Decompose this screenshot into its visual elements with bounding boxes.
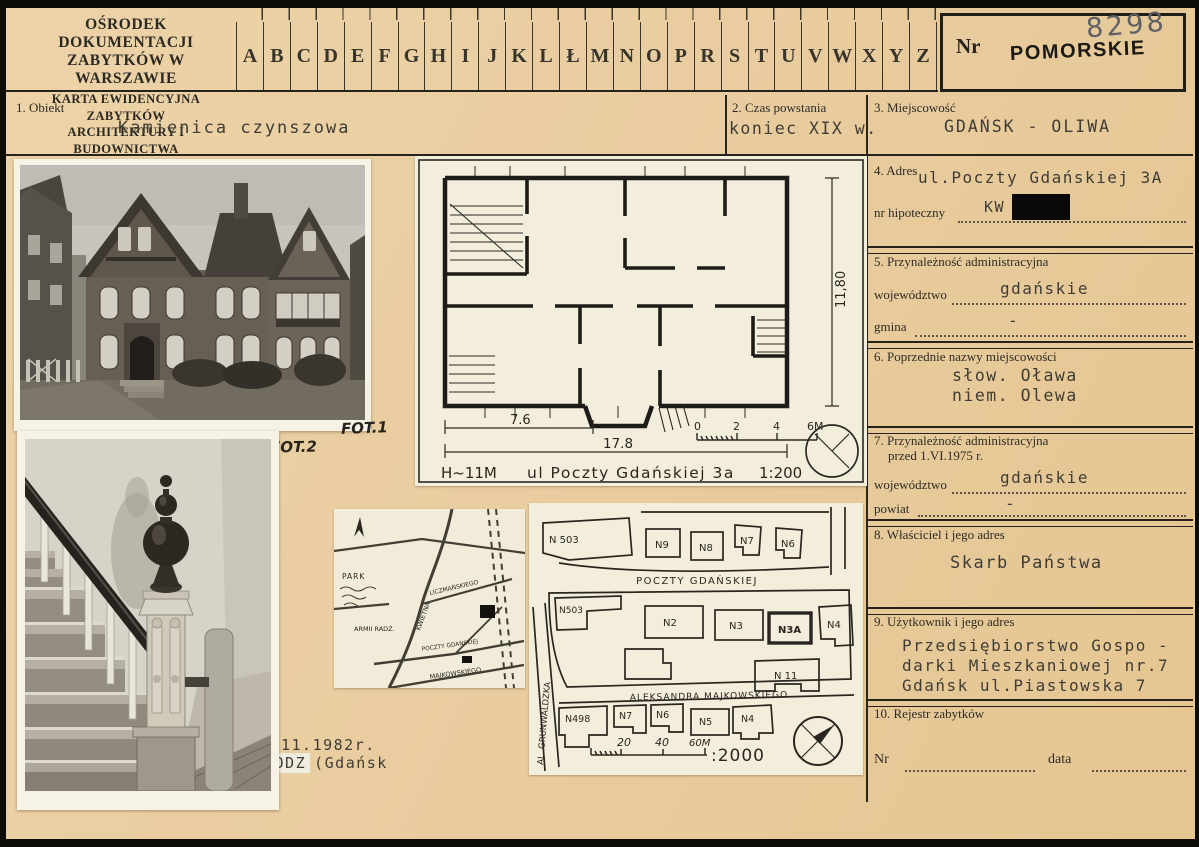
svg-text:PARK: PARK: [342, 572, 365, 581]
poprzednie-line2: niem. Olewa: [952, 386, 1078, 405]
floor-plan-drawing: 7.6 17.8 11,80 0 2 4 6M H~11M ul Poczty …: [415, 156, 867, 486]
svg-text:N4: N4: [827, 620, 841, 631]
photo1-caption: FOT.1: [341, 418, 388, 438]
site-plan: N 503 N9 N8 N7 N6 N503 N2 N3 N3A N4 N 11…: [529, 503, 863, 775]
alphabet-letter-P: P: [667, 22, 694, 90]
field-poprzednie-label: 6. Poprzednie nazwy miejscowości: [874, 349, 1057, 365]
photo-building: [14, 159, 371, 431]
alphabet-letter-K: K: [505, 22, 532, 90]
uzytkownik-line1: Przedsiębiorstwo Gospo -: [902, 636, 1169, 655]
svg-text:N503: N503: [559, 606, 583, 616]
header-bottom-rule: [6, 90, 938, 92]
svg-text:N2: N2: [663, 618, 677, 629]
field-przynaleznosc-label: 5. Przynależność administracyjna: [874, 254, 1048, 270]
institution-name-line2: ZABYTKÓW W WARSZAWIE: [16, 52, 236, 88]
alphabet-letter-Y: Y: [882, 22, 909, 90]
alphabet-letter-M: M: [586, 22, 613, 90]
svg-text:60M: 60M: [689, 738, 711, 749]
field-hipoteczny-value: KW: [984, 198, 1005, 216]
alphabet-letter-G: G: [398, 22, 425, 90]
powiat-value: -: [1005, 494, 1016, 513]
alphabet-strip: ABCDEFGHIJKLŁMNOPRSTUVWXYZ: [236, 22, 937, 90]
alphabet-letter-S: S: [721, 22, 748, 90]
field-obiekt-label: 1. Obiekt: [16, 100, 64, 116]
alphabet-letter-W: W: [828, 22, 855, 90]
institution-name-line1: OŚRODEK DOKUMENTACJI: [16, 16, 236, 52]
svg-text:N6: N6: [781, 539, 795, 550]
powiat-dotted-line: [918, 514, 1186, 517]
svg-text:0: 0: [694, 420, 701, 433]
alphabet-letter-D: D: [317, 22, 344, 90]
divider-7-8: [866, 519, 1193, 527]
svg-text::2000: :2000: [711, 746, 765, 766]
svg-text:N9: N9: [655, 540, 669, 551]
field-przynaleznosc1975-label: 7. Przynależność administracyjna: [874, 433, 1048, 449]
rejestr-data-label: data: [1048, 752, 1071, 768]
svg-text:N5: N5: [699, 717, 712, 728]
alphabet-letter-R: R: [694, 22, 721, 90]
alphabet-letter-F: F: [371, 22, 398, 90]
svg-text:2: 2: [733, 420, 740, 433]
svg-text:17.8: 17.8: [603, 436, 633, 452]
alphabet-letter-T: T: [748, 22, 775, 90]
nr-label: Nr: [956, 34, 981, 59]
alphabet-letter-X: X: [855, 22, 882, 90]
alphabet-letter-A: A: [236, 22, 263, 90]
gmina-dotted-line: [915, 334, 1186, 337]
uzytkownik-line2: darki Mieszkaniowej nr.7: [902, 656, 1169, 675]
svg-text:7.6: 7.6: [510, 413, 531, 428]
godz-suffix: (Gdańsk: [314, 754, 388, 772]
svg-text:ARMII RADZ.: ARMII RADZ.: [354, 625, 395, 633]
floor-plan-sheet: 7.6 17.8 11,80 0 2 4 6M H~11M ul Poczty …: [415, 156, 867, 486]
field-uzytkownik-label: 9. Użytkownik i jego adres: [874, 614, 1014, 630]
svg-text:N6: N6: [656, 710, 669, 721]
svg-text:N 503: N 503: [549, 535, 579, 546]
field-wlasciciel-label: 8. Właściciel i jego adres: [874, 527, 1005, 543]
svg-text:N3: N3: [729, 621, 743, 632]
field-obiekt-value: Kamienica czynszowa: [118, 118, 350, 138]
field-czas-value: koniec XIX w.: [729, 119, 878, 138]
wojewodztwo-value: gdańskie: [1000, 279, 1089, 298]
poprzednie-line1: słow. Oława: [952, 366, 1078, 385]
minimap-drawing: PARK ARMII RADZ. KWIETNA LICZMAŃSKIEGO P…: [334, 509, 525, 688]
floor-plan-compass: [806, 425, 858, 477]
wojewodztwo1975-label: województwo: [874, 477, 947, 493]
hipoteczny-dotted-line: [958, 220, 1186, 223]
alphabet-tick-marks: [236, 8, 936, 20]
site-plan-compass: [794, 717, 842, 765]
wlasciciel-value: Skarb Państwa: [950, 553, 1103, 573]
divider-field2: [725, 95, 727, 155]
field-przynaleznosc1975-label2: przed 1.VI.1975 r.: [888, 448, 983, 464]
field-hipoteczny-label: nr hipoteczny: [874, 205, 945, 221]
svg-text:MAJKOWSKIEGO: MAJKOWSKIEGO: [429, 666, 482, 681]
field-rejestr-label: 10. Rejestr zabytków: [874, 706, 984, 722]
alphabet-letter-B: B: [263, 22, 290, 90]
svg-text:N 11: N 11: [774, 671, 797, 682]
svg-text:N8: N8: [699, 543, 713, 554]
alphabet-letter-U: U: [774, 22, 801, 90]
alphabet-letter-E: E: [344, 22, 371, 90]
divider-4-5: [866, 246, 1193, 254]
wojewodztwo-label: województwo: [874, 287, 947, 303]
redaction-box: [1012, 194, 1070, 220]
svg-text:POCZTY GDAŃSKIEJ: POCZTY GDAŃSKIEJ: [636, 574, 758, 587]
building-photo-illustration: [20, 165, 365, 420]
field-adres-value: ul.Poczty Gdańskiej 3A: [918, 168, 1163, 187]
alphabet-letter-L: L: [532, 22, 559, 90]
divider-5-6: [866, 341, 1193, 349]
rejestr-nr-dotted-line: [905, 769, 1035, 772]
powiat-label: powiat: [874, 501, 909, 517]
uzytkownik-line3: Gdańsk ul.Piastowska 7: [902, 676, 1147, 695]
field-miejscowosc-label: 3. Miejscowość: [874, 100, 956, 116]
wojewodztwo1975-dotted-line: [952, 491, 1186, 494]
wojewodztwo1975-value: gdańskie: [1000, 468, 1089, 487]
svg-text:H~11M: H~11M: [441, 464, 497, 482]
staircase-photo-illustration: [25, 439, 271, 791]
alphabet-letter-H: H: [424, 22, 451, 90]
gmina-label: gmina: [874, 319, 907, 335]
field-miejscowosc-value: GDAŃSK - OLIWA: [944, 117, 1111, 136]
svg-text:N498: N498: [565, 714, 590, 725]
alphabet-letter-V: V: [801, 22, 828, 90]
svg-text:11,80: 11,80: [834, 271, 849, 308]
alphabet-letter-I: I: [451, 22, 478, 90]
svg-text:ALEKSANDRA MAJKOWSKIEGO: ALEKSANDRA MAJKOWSKIEGO: [630, 691, 789, 704]
svg-text:N3A: N3A: [778, 625, 801, 636]
rejestr-data-dotted-line: [1092, 769, 1186, 772]
alphabet-letter-N: N: [613, 22, 640, 90]
rejestr-nr-label: Nr: [874, 752, 889, 768]
alphabet-letter-O: O: [640, 22, 667, 90]
svg-text:4: 4: [773, 420, 780, 433]
svg-text:1:200: 1:200: [759, 464, 802, 482]
photo-staircase: [17, 431, 279, 810]
alphabet-letter-Ł: Ł: [559, 22, 586, 90]
field-adres-label: 4. Adres: [874, 163, 917, 179]
location-minimap: PARK ARMII RADZ. KWIETNA LICZMAŃSKIEGO P…: [334, 509, 525, 688]
svg-text:40: 40: [655, 736, 669, 749]
alphabet-letter-J: J: [478, 22, 505, 90]
svg-text:20: 20: [617, 736, 631, 749]
svg-text:N4: N4: [741, 714, 754, 725]
alphabet-letter-Z: Z: [909, 22, 936, 90]
svg-text:ul Poczty Gdańskiej 3a: ul Poczty Gdańskiej 3a: [527, 464, 735, 482]
scanned-record-card: OŚRODEK DOKUMENTACJI ZABYTKÓW W WARSZAWI…: [0, 0, 1199, 847]
date-annotation: 11.1982r.: [281, 736, 376, 754]
field-czas-label: 2. Czas powstania: [732, 100, 826, 116]
gmina-value: -: [1008, 311, 1019, 330]
site-plan-drawing: N 503 N9 N8 N7 N6 N503 N2 N3 N3A N4 N 11…: [529, 503, 863, 775]
svg-text:N7: N7: [619, 711, 632, 722]
alphabet-letter-C: C: [290, 22, 317, 90]
wojewodztwo-dotted-line: [952, 302, 1186, 305]
svg-text:N7: N7: [740, 536, 754, 547]
